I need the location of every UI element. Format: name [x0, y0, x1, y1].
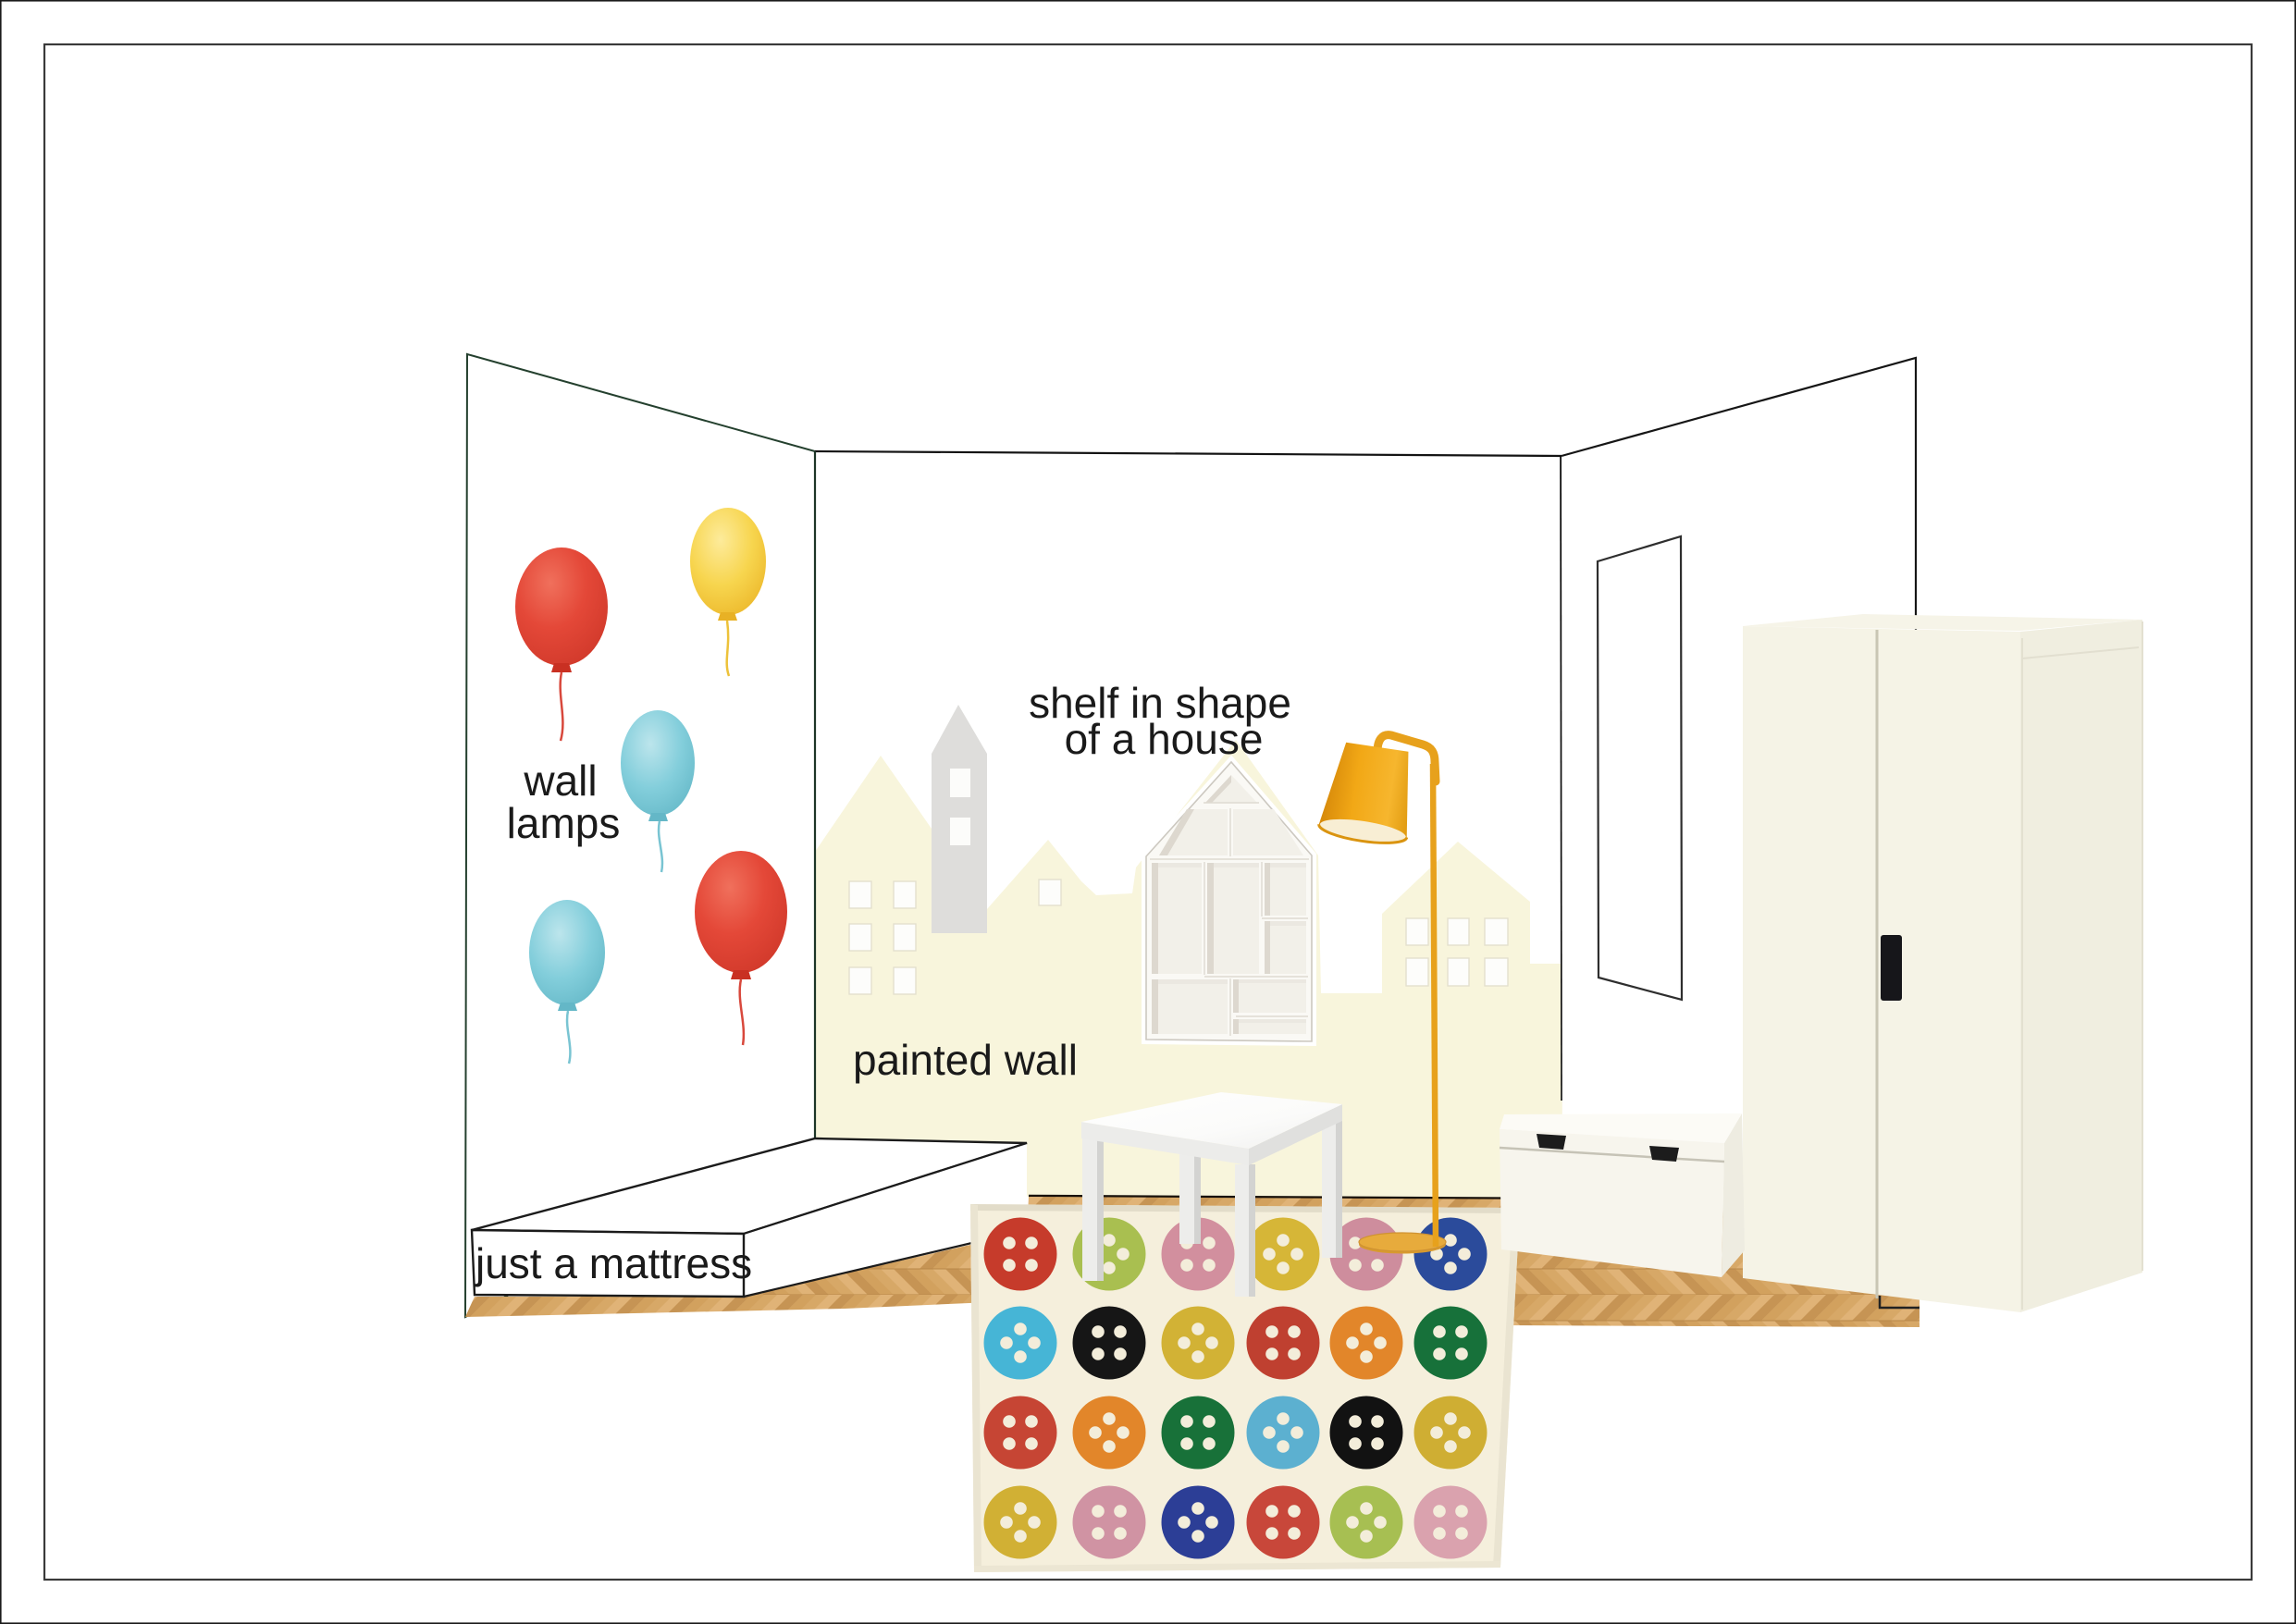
svg-text:of a house: of a house [1065, 715, 1264, 763]
svg-text:wall: wall [523, 757, 597, 805]
svg-text:lamps: lamps [507, 799, 621, 847]
svg-text:just a mattress: just a mattress [474, 1239, 752, 1287]
svg-text:painted wall: painted wall [853, 1036, 1078, 1084]
